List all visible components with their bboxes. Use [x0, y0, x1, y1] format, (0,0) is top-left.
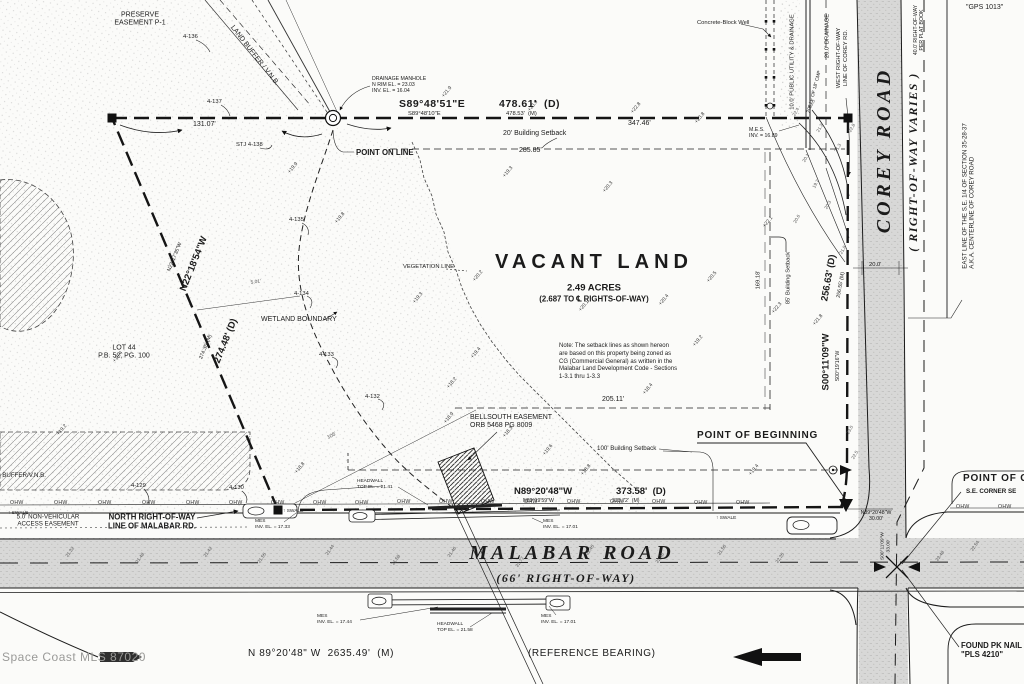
- ohw-marker: OHW: [694, 500, 708, 506]
- pob-label: POINT OF BEGINNING: [697, 430, 818, 442]
- poc-sub-label: S.E. CORNER SE: [966, 488, 1016, 495]
- malabar-road-row: (66' RIGHT-OF-WAY): [496, 571, 635, 585]
- mes-mid-label: MES INV. EL. = 17.01: [543, 519, 578, 531]
- dim-169-18: 169.18': [756, 271, 763, 290]
- dim-20-0: 20.0': [869, 262, 881, 269]
- reference-arrow: [733, 648, 801, 666]
- headwall-south-label: HEADWALL TOP EL. = 21.58: [437, 622, 473, 634]
- swale-label-2: ↑ SWALE: [283, 509, 303, 515]
- parcel-area: 2.49 ACRES: [567, 282, 621, 293]
- north-row-malabar-label: NORTH RIGHT-OF-WAY LINE OF MALABAR RD.: [108, 513, 196, 532]
- drainage-manhole-callout: DRAINAGE MANHOLE N RIM EL. = 23.03 INV. …: [372, 76, 426, 95]
- flag-stj-4-138: STJ 4-138: [236, 142, 263, 149]
- setback-85-label: 85' Building Setback: [786, 252, 793, 304]
- mes-west-label: MES INV. EL. = 17.33: [255, 519, 290, 531]
- ohw-marker: OHW: [397, 499, 411, 505]
- flag-4-135: 4-135: [289, 217, 304, 224]
- flag-4-129: 4-129: [131, 483, 146, 490]
- swale-label-1: ↑ SWALE: [8, 511, 28, 517]
- south-bearing-d: N89°20'48"W: [514, 486, 572, 497]
- headwall-north-label: HEADWALL TOP EL. = 21.41: [357, 479, 393, 491]
- dim-285-85: 285.85': [519, 147, 542, 155]
- setback-100-label: 100' Building Setback: [597, 445, 656, 452]
- east-line-corey-label: EAST LINE OF THE S.E. 1/4 OF SECTION 35-…: [962, 123, 977, 269]
- ohw-marker: OHW: [567, 499, 581, 505]
- dim-205-11: 205.11': [602, 396, 624, 404]
- reference-bearing-label: (REFERENCE BEARING): [528, 648, 656, 660]
- poc-label: POINT OF C: [963, 473, 1024, 485]
- ohw-marker: OHW: [736, 500, 750, 506]
- ohw-marker: OHW: [98, 500, 112, 506]
- malabar-road-name: MALABAR ROAD: [469, 541, 674, 565]
- watermark: Space Coast MLS 87020: [2, 650, 146, 664]
- drainage-20-label: 20.0' DRAINAGE: [825, 14, 832, 58]
- ohw-marker: OHW: [271, 500, 285, 506]
- flag-4-137: 4-137: [207, 99, 222, 106]
- ohw-marker: OHW: [54, 500, 68, 506]
- ohw-marker: OHW: [10, 500, 24, 506]
- flag-4-133: 4-133: [319, 352, 334, 359]
- flag-4-134: 4-134: [294, 291, 309, 298]
- ohw-marker: OHW: [229, 500, 243, 506]
- vegetation-line-label: VEGETATION LINE: [403, 264, 454, 271]
- south-dist-d: 373.58' (D): [616, 486, 666, 497]
- north-dist-m: 478.53' (M): [506, 111, 537, 118]
- ohw-marker: OHW: [998, 504, 1012, 510]
- swale-label-3: ↑ SWALE: [716, 516, 736, 522]
- gps-label: "GPS 1013": [966, 4, 1003, 12]
- dim-347-46: 347.46': [628, 120, 651, 128]
- ohw-marker: OHW: [610, 499, 624, 505]
- point-on-line-label: POINT ON LINE: [356, 148, 414, 157]
- ohw-marker: OHW: [524, 499, 538, 505]
- concrete-well-label: Concrete-Block Well: [697, 20, 749, 27]
- east-bearing-m: S00°19'16"W: [835, 351, 841, 382]
- flag-4-136: 4-136: [183, 34, 198, 41]
- parcel-title: VACANT LAND: [495, 250, 693, 274]
- ohw-marker: OHW: [142, 500, 156, 506]
- corey-road-name: COREY ROAD: [872, 67, 896, 234]
- east-bearing-d: S00°11'09"W: [820, 333, 831, 390]
- plat-row-label: 40.0' RIGHT-OF-WAY PER PLAT BOOK: [913, 5, 925, 55]
- flag-4-132: 4-132: [365, 394, 380, 401]
- utility-easement-label: 10.0' PUBLIC UTILITY & DRAINAGE: [790, 14, 797, 109]
- mes-se-label: MES INV. EL. = 17.01: [541, 614, 576, 626]
- nw-corner-monument: [108, 114, 117, 123]
- ohw-marker: OHW: [355, 500, 369, 506]
- north-bearing-m: S89°48'10"E: [408, 111, 441, 118]
- sw-corner-monument: [274, 506, 283, 515]
- west-row-corey-label: WEST RIGHT-OF-WAY LINE OF COREY RD.: [836, 28, 850, 88]
- north-bearing-d: S89°48'51"E: [399, 98, 465, 111]
- tie-30-label: N89°20'48"W 30.00': [861, 510, 892, 522]
- zoning-note: Note: The setback lines as shown hereon …: [559, 343, 677, 382]
- ohw-marker: OHW: [652, 499, 666, 505]
- mes-sw-label: MES INV. EL. = 17.44: [317, 614, 352, 626]
- corey-ext-label: S00°11'09"W 33.00': [880, 532, 892, 560]
- wetland-boundary-label: WETLAND BOUNDARY: [261, 316, 337, 324]
- preserve-easement-label: PRESERVE EASEMENT P-1: [114, 12, 165, 29]
- ohw-marker: OHW: [956, 504, 970, 510]
- dim-131-07: 131.07': [193, 121, 216, 129]
- parcel-area-note: (2.687 TO ℄ RIGHTS-OF-WAY): [539, 294, 648, 303]
- ohw-marker: OHW: [186, 500, 200, 506]
- corey-road-row: ( RIGHT-OF-WAY VARIES ): [906, 72, 920, 252]
- pk-nail-label: FOUND PK NAIL "PLS 4210": [961, 641, 1022, 660]
- ohw-marker: OHW: [439, 499, 453, 505]
- land-buffer-left-label: LAND BUFFER/V.N.B.: [0, 472, 46, 479]
- survey-plat: VACANT LAND 2.49 ACRES (2.687 TO ℄ RIGHT…: [0, 0, 1024, 684]
- reference-bearing: N 89°20'48" W 2635.49' (M): [248, 648, 394, 660]
- mes-ne-label: M.E.S. INV. = 16.89: [749, 127, 778, 139]
- ohw-marker: OHW: [481, 499, 495, 505]
- ne-corner-monument: [844, 114, 853, 123]
- setback-20-label: 20' Building Setback: [503, 130, 566, 138]
- ohw-marker: OHW: [313, 500, 327, 506]
- east-boundary-line: [841, 118, 848, 507]
- flag-4-130: 4-130: [229, 485, 244, 492]
